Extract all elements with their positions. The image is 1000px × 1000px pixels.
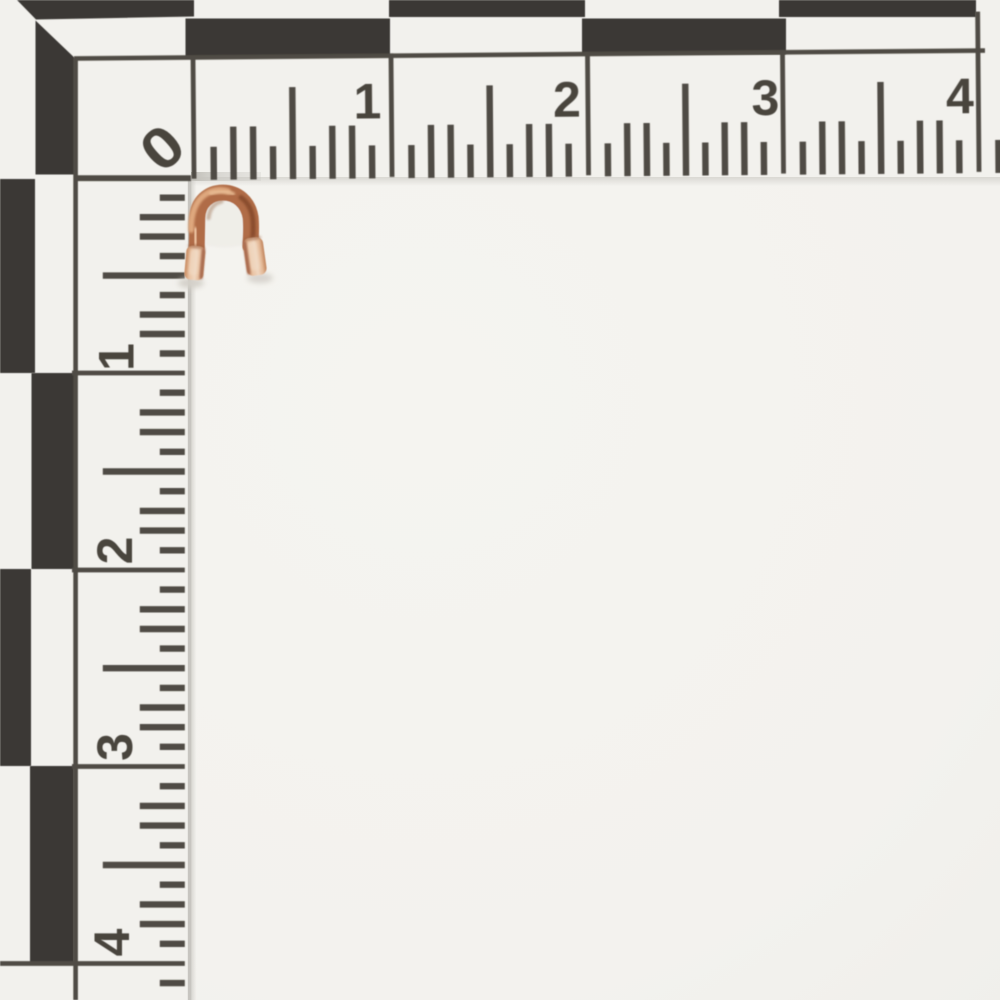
svg-text:1: 1 <box>89 343 145 371</box>
svg-text:2: 2 <box>87 537 143 565</box>
svg-text:3: 3 <box>87 733 143 761</box>
svg-text:3: 3 <box>751 70 779 126</box>
svg-text:1: 1 <box>353 73 381 129</box>
svg-text:2: 2 <box>553 72 581 128</box>
svg-text:4: 4 <box>946 68 974 124</box>
svg-text:4: 4 <box>84 928 140 956</box>
